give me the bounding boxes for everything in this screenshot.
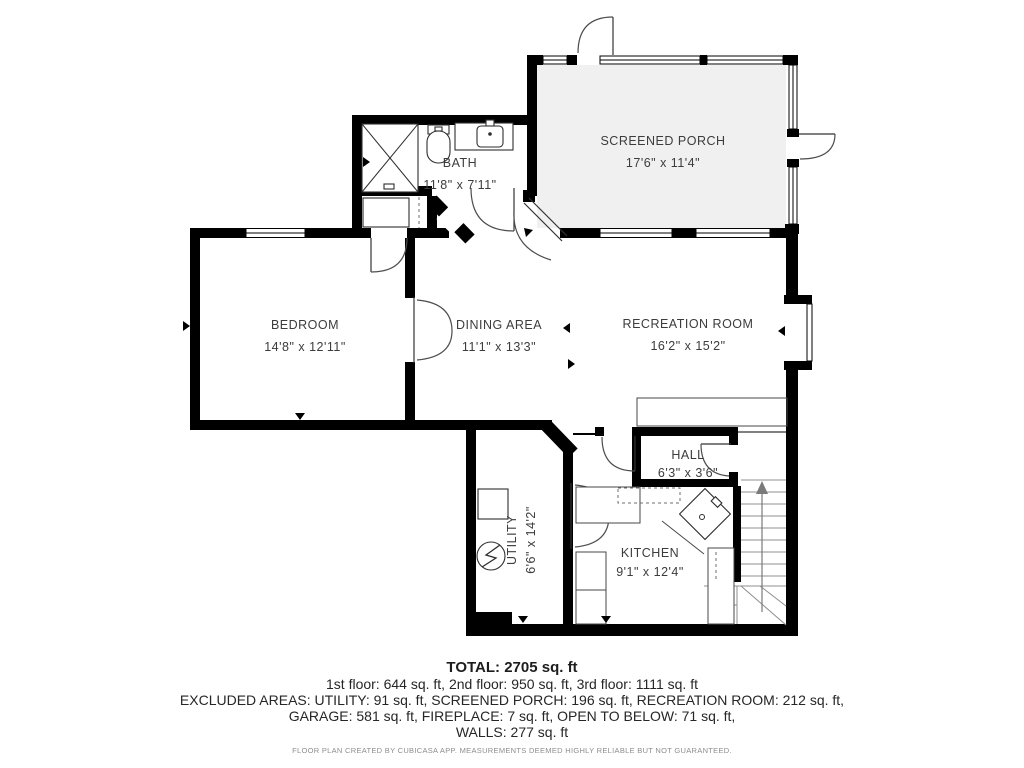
dims-dining: 11'1" x 13'3" — [462, 340, 536, 354]
total-area-text: TOTAL: 2705 sq. ft — [446, 659, 577, 676]
excluded-areas-line2: GARAGE: 581 sq. ft, FIREPLACE: 7 sq. ft,… — [289, 708, 736, 724]
dims-bath: 11'8" x 7'11" — [423, 178, 496, 192]
summary-block: TOTAL: 2705 sq. ft 1st floor: 644 sq. ft… — [180, 659, 844, 755]
washer — [363, 197, 419, 228]
dims-kitchen: 9'1" x 12'4" — [616, 565, 684, 579]
label-utility: UTILITY — [505, 515, 519, 565]
stairs-up-arrow-icon — [756, 481, 768, 612]
corner-sink — [680, 489, 731, 540]
label-recreation: RECREATION ROOM — [623, 317, 754, 331]
label-hall: HALL — [671, 448, 704, 462]
excluded-areas-line3: WALLS: 277 sq. ft — [456, 724, 568, 740]
label-dining: DINING AREA — [456, 318, 542, 332]
fireplace — [784, 295, 812, 370]
floor-areas-text: 1st floor: 644 sq. ft, 2nd floor: 950 sq… — [326, 676, 698, 692]
dims-bedroom: 14'8" x 12'11" — [264, 340, 346, 354]
excluded-areas-line1: EXCLUDED AREAS: UTILITY: 91 sq. ft, SCRE… — [180, 692, 844, 708]
label-porch: SCREENED PORCH — [600, 134, 725, 148]
floorplan-svg: BATH 11'8" x 7'11" SCREENED PORCH 17'6" … — [0, 0, 1024, 768]
dims-recreation: 16'2" x 15'2" — [650, 339, 725, 353]
disclaimer-text: FLOOR PLAN CREATED BY CUBICASA APP. MEAS… — [292, 746, 732, 755]
label-bath: BATH — [443, 156, 477, 170]
shower — [362, 124, 418, 192]
dims-utility: 6'6" x 14'2" — [524, 506, 538, 574]
hearth-outline — [637, 398, 787, 426]
water-heater — [478, 489, 508, 519]
dims-hall: 6'3" x 3'6" — [658, 466, 718, 480]
label-kitchen: KITCHEN — [621, 546, 679, 560]
dims-porch: 17'6" x 11'4" — [626, 156, 700, 170]
vanity-sink — [455, 120, 513, 150]
electrical-panel-icon — [477, 542, 505, 570]
label-bedroom: BEDROOM — [271, 318, 339, 332]
